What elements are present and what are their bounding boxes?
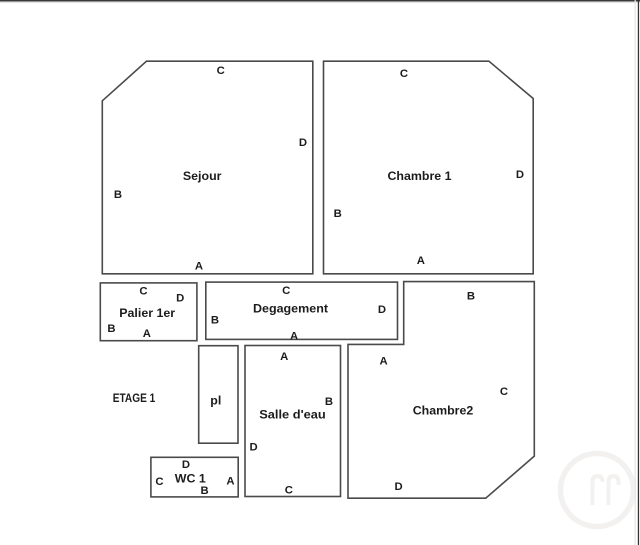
svg-text:Chambre 1: Chambre 1: [387, 169, 451, 183]
svg-text:B: B: [325, 396, 333, 408]
svg-text:Palier 1er: Palier 1er: [119, 306, 175, 320]
svg-text:D: D: [250, 442, 258, 454]
svg-text:D: D: [182, 459, 190, 471]
svg-text:A: A: [380, 356, 388, 368]
svg-text:B: B: [114, 189, 122, 201]
svg-text:C: C: [217, 65, 225, 77]
svg-text:A: A: [417, 255, 425, 267]
svg-text:Degagement: Degagement: [253, 302, 328, 316]
svg-text:A: A: [143, 328, 151, 340]
svg-text:C: C: [282, 285, 290, 297]
svg-text:ETAGE 1: ETAGE 1: [113, 391, 156, 405]
svg-text:D: D: [395, 481, 403, 493]
svg-text:C: C: [500, 386, 508, 398]
svg-text:WC 1: WC 1: [175, 471, 206, 485]
svg-text:B: B: [107, 323, 115, 335]
svg-text:C: C: [400, 68, 408, 80]
svg-text:B: B: [334, 208, 342, 220]
svg-text:D: D: [516, 169, 524, 181]
svg-text:A: A: [290, 330, 298, 342]
svg-text:B: B: [467, 291, 475, 303]
svg-text:D: D: [378, 304, 386, 316]
svg-text:B: B: [201, 485, 209, 497]
svg-text:pl: pl: [210, 393, 221, 407]
svg-text:A: A: [195, 261, 203, 273]
svg-text:C: C: [285, 485, 293, 497]
svg-text:D: D: [176, 293, 184, 305]
svg-text:D: D: [299, 137, 307, 149]
svg-text:C: C: [155, 476, 163, 488]
svg-text:Chambre2: Chambre2: [413, 403, 474, 417]
svg-text:Salle d'eau: Salle d'eau: [259, 408, 326, 422]
svg-text:C: C: [139, 286, 147, 298]
svg-text:A: A: [226, 476, 234, 488]
svg-text:A: A: [280, 351, 288, 363]
svg-text:B: B: [211, 314, 219, 326]
svg-text:Sejour: Sejour: [183, 169, 222, 183]
